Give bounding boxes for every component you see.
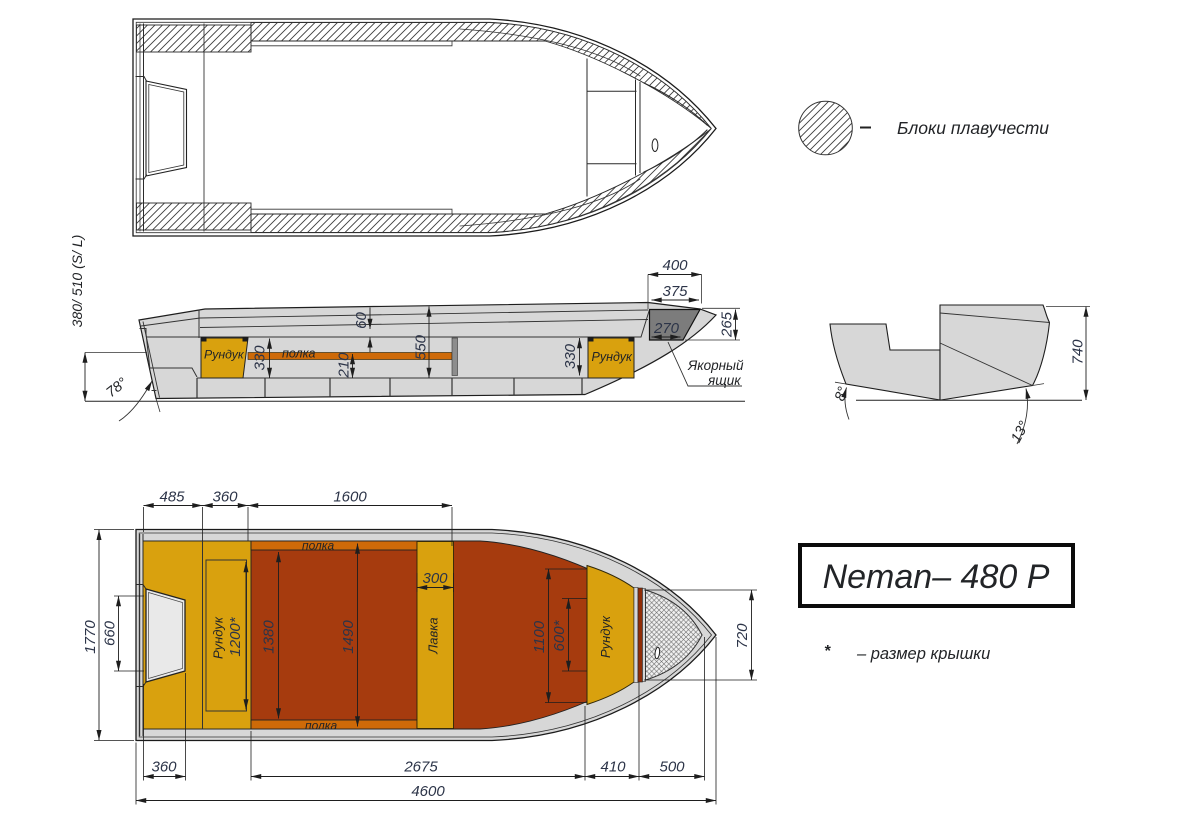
svg-text:410: 410 — [600, 759, 626, 776]
svg-text:360: 360 — [212, 489, 238, 506]
svg-text:660: 660 — [102, 620, 119, 646]
svg-text:270: 270 — [653, 320, 680, 337]
svg-text:360: 360 — [151, 759, 177, 776]
svg-text:265: 265 — [719, 311, 736, 338]
svg-text:ящик: ящик — [707, 373, 741, 388]
svg-text:4600: 4600 — [411, 783, 445, 800]
svg-text:400: 400 — [662, 257, 688, 274]
svg-text:Лавка: Лавка — [426, 617, 441, 654]
svg-text:380/ 510 (S/ L): 380/ 510 (S/ L) — [69, 235, 85, 328]
svg-text:1770: 1770 — [82, 620, 99, 654]
svg-text:– размер крышки: – размер крышки — [856, 645, 990, 663]
svg-text:330: 330 — [252, 345, 269, 371]
svg-text:Рундук: Рундук — [211, 616, 226, 659]
svg-text:300: 300 — [422, 570, 448, 587]
svg-text:Рундук: Рундук — [592, 350, 633, 364]
svg-text:600*: 600* — [551, 619, 568, 651]
svg-text:Якорный: Якорный — [687, 358, 744, 373]
svg-text:полка: полка — [305, 719, 337, 733]
svg-text:1490: 1490 — [340, 620, 357, 654]
svg-text:500: 500 — [659, 759, 685, 776]
svg-text:1600: 1600 — [333, 489, 367, 506]
svg-text:210: 210 — [336, 352, 353, 379]
svg-text:550: 550 — [413, 334, 430, 360]
svg-text:Рундук: Рундук — [204, 348, 245, 362]
svg-text:Блоки плавучести: Блоки плавучести — [897, 118, 1049, 138]
svg-text:*: * — [824, 643, 831, 660]
svg-text:1200*: 1200* — [227, 616, 244, 656]
svg-text:330: 330 — [562, 343, 579, 369]
svg-text:Рундук: Рундук — [598, 615, 613, 658]
svg-text:полка: полка — [302, 539, 334, 553]
svg-text:1380: 1380 — [261, 620, 278, 654]
svg-text:Neman– 480 P: Neman– 480 P — [823, 558, 1050, 596]
svg-text:60: 60 — [353, 312, 370, 329]
svg-text:720: 720 — [734, 623, 751, 649]
svg-text:1100: 1100 — [531, 620, 548, 653]
svg-text:2675: 2675 — [403, 759, 438, 776]
svg-text:485: 485 — [159, 489, 185, 506]
svg-text:полка: полка — [282, 347, 316, 361]
svg-text:375: 375 — [662, 283, 688, 300]
svg-text:740: 740 — [1070, 339, 1087, 365]
